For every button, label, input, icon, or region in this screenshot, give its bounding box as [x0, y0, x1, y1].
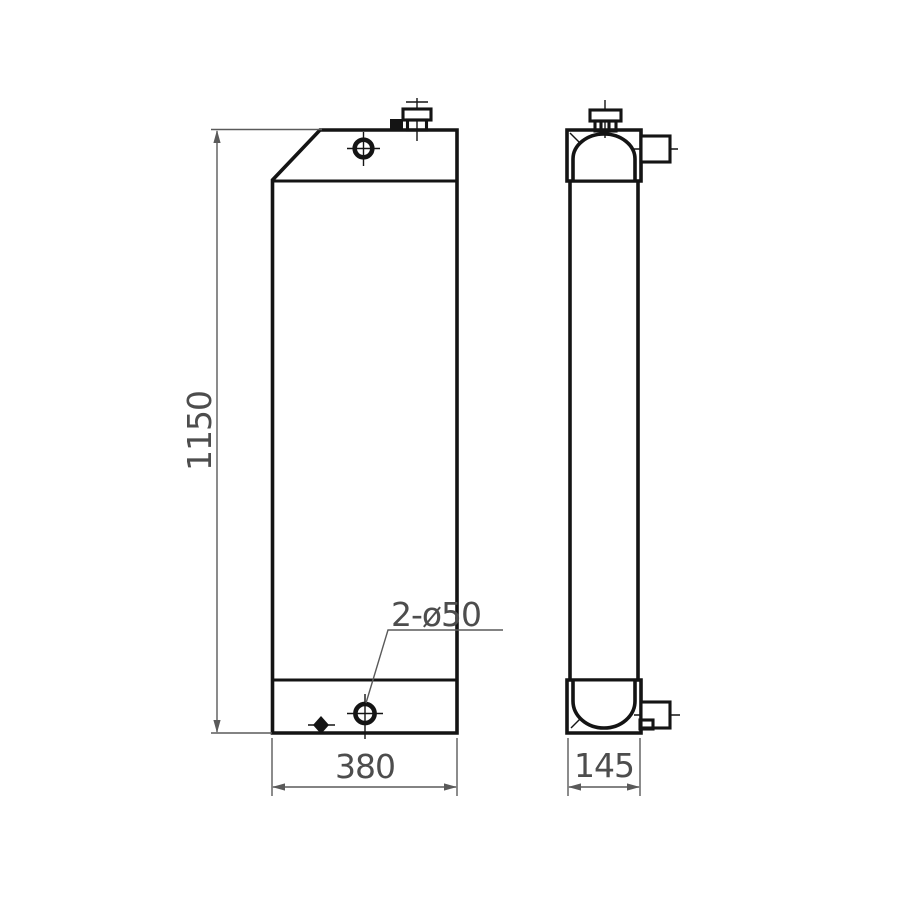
dim-height-arrow-top [213, 130, 220, 143]
dim-width-label: 380 [335, 747, 395, 786]
side-view [567, 100, 680, 733]
dim-depth: 145 [568, 738, 640, 796]
front-outline [273, 130, 458, 733]
front-view [273, 98, 458, 739]
side-top-dome [573, 134, 635, 181]
cap-flange [403, 109, 431, 120]
cap-step [390, 119, 403, 129]
dim-height-arrow-bottom [213, 720, 220, 733]
dim-width: 380 [272, 738, 457, 796]
side-filler-cap [590, 100, 621, 138]
hole-callout-label: 2-ø50 [391, 595, 481, 634]
side-bottom-pipe-body [641, 702, 670, 728]
dim-depth-label: 145 [574, 746, 634, 785]
engineering-drawing-canvas: 1150 380 145 2-ø50 [0, 0, 900, 900]
dim-width-arrow-left [272, 783, 285, 790]
side-top-pipe [634, 136, 678, 162]
dim-height-label: 1150 [180, 391, 219, 471]
side-bottom-bowl [573, 680, 635, 728]
dim-width-arrow-right [444, 783, 457, 790]
side-bottom-pipe [634, 702, 680, 729]
drawing-sheet: 1150 380 145 2-ø50 [0, 0, 900, 900]
side-cap-flange [590, 110, 621, 121]
side-top-pipe-body [641, 136, 670, 162]
